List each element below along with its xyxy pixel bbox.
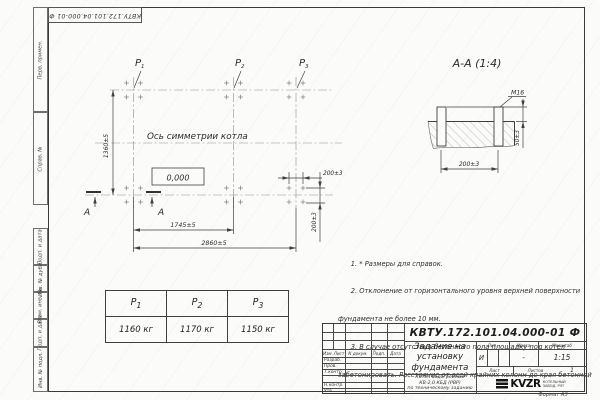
load-point-label-3: P3 [299, 58, 309, 70]
load-table-header: P1 [106, 291, 167, 317]
load-table-header-row: P1 P2 P3 [106, 291, 289, 317]
sheets-value: 1 [558, 366, 586, 375]
dim-total: 2860±5 [201, 240, 226, 247]
note-line: 1. * Размеры для справок. [338, 260, 588, 269]
load-table-header: P3 [228, 291, 289, 317]
section-title: А-А (1:4) [452, 57, 502, 70]
anchor-bolt-marks [124, 81, 305, 205]
company-logo: KVZR КОТЕЛЬНЫЙ ЗАВОД. РЭТ [476, 375, 586, 393]
col-data: Дата [387, 349, 404, 357]
load-table-header: P2 [167, 291, 228, 317]
row-utv: Утв. [324, 388, 345, 394]
product-name-cell: Котел водогрейный КВ-2,0 КБД (РВР) по те… [404, 374, 476, 393]
dim-bolt-x: 200±3 [323, 171, 343, 177]
drawing-sheet: Перв. примен. Справ. № Подп. и дата Инв.… [0, 0, 600, 400]
section-letter-right: А [157, 208, 164, 218]
kvzr-logo-text: KVZR [510, 378, 540, 390]
dim-span1: 1745±5 [170, 222, 195, 229]
section-letter-left: А [83, 208, 90, 218]
dim-bolt-y: 200±3 [312, 212, 318, 232]
sheets-label: Листов [513, 366, 558, 375]
col-list: Лист [333, 349, 345, 357]
load-point-label-1: P1 [135, 58, 145, 70]
level-mark-value: 0,000 [167, 174, 190, 183]
load-table-value-row: 1160 кг 1170 кг 1150 кг [106, 317, 289, 343]
load-point-label-2: P2 [235, 58, 245, 70]
section-dim-width: 200±3 [459, 161, 479, 168]
row-tkontr: Т.контр. [324, 369, 345, 375]
scale-label: Масштаб [538, 341, 586, 349]
bolt-thread-label: М16 [511, 90, 524, 97]
doc-title-line: фундамента [412, 363, 469, 374]
load-table: P1 P2 P3 1160 кг 1170 кг 1150 кг [105, 290, 289, 343]
col-izm: Изм. [323, 349, 333, 357]
lit-value: И [476, 349, 487, 366]
plan-view: P1 P2 P3 Ось симметрии котла 0,000 [83, 58, 343, 252]
section-dim-height: 50±3 [515, 130, 521, 146]
kvzr-logo-caption: КОТЕЛЬНЫЙ ЗАВОД. РЭТ [543, 380, 566, 389]
note-line: 2. Отклонение от горизонтального уровня … [338, 287, 588, 296]
plan-dimension-lines [113, 90, 325, 252]
foundation-bolt-right [494, 107, 503, 146]
load-table-value: 1150 кг [228, 317, 289, 343]
dim-height: 1360±5 [103, 134, 110, 158]
col-podp: Подп. [371, 349, 387, 357]
load-table-value: 1170 кг [167, 317, 228, 343]
mass-value: - [509, 349, 538, 366]
foundation-bolt-left [437, 107, 446, 146]
section-view: А-А (1:4) М16 200± [428, 57, 527, 173]
symmetry-axis-caption: Ось симметрии котла [147, 132, 248, 142]
title-block: КВТУ.172.101.04.000-01 Ф Изм. Лист N док… [322, 323, 587, 394]
mass-label: Масса [509, 341, 538, 349]
col-ndokum: N докум. [345, 349, 371, 357]
sheet-label: Лист [476, 366, 513, 375]
doc-title-line: установку [417, 352, 463, 363]
kvzr-logo-icon [496, 379, 508, 390]
load-table-value: 1160 кг [106, 317, 167, 343]
lit-label: Лит. [476, 341, 509, 349]
scale-value: 1:15 [538, 349, 586, 366]
designation-cell: КВТУ.172.101.04.000-01 Ф [404, 324, 586, 341]
doc-title-cell: Задание на установку фундамента [404, 341, 476, 374]
format-note: Формат А3 [523, 392, 583, 398]
doc-title-line: Задание на [414, 342, 466, 353]
section-cut-marks [86, 192, 161, 207]
product-line: по техническому заданию [407, 386, 472, 392]
